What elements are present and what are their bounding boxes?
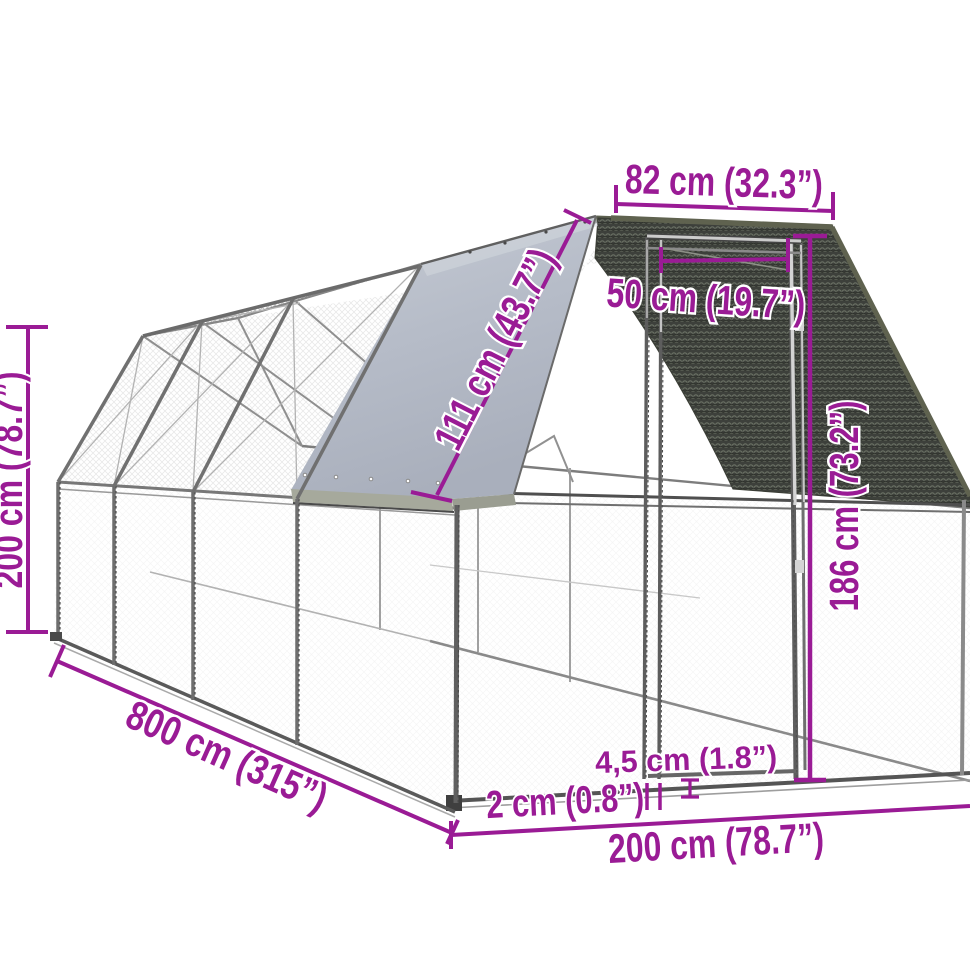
svg-text:4,5 cm (1.8”): 4,5 cm (1.8”) [595,739,778,780]
svg-text:82 cm (32.3”): 82 cm (32.3”) [624,156,823,208]
svg-text:2 cm (0.8”): 2 cm (0.8”) [485,776,645,827]
svg-text:200 cm (78.7”): 200 cm (78.7”) [0,372,31,589]
svg-text:186 cm (73.2”): 186 cm (73.2”) [821,401,867,612]
